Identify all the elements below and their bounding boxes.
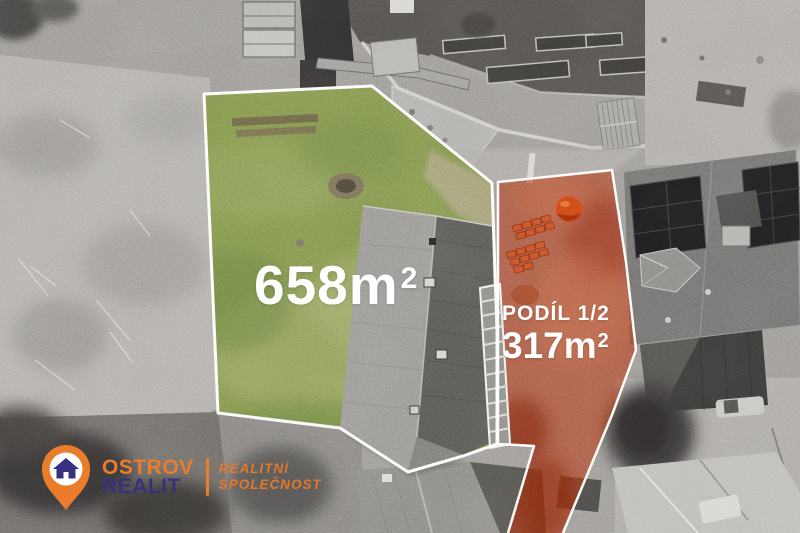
tagline-line1: REALITNÍ <box>219 461 322 477</box>
aerial-photo: 658m2 PODÍL 1/2 317m2 OSTROV REALIT REAL… <box>0 0 800 533</box>
tagline-line2: SPOLEČNOST <box>219 477 322 493</box>
brand-name: OSTROV REALIT <box>102 458 194 497</box>
map-pin-home-icon <box>38 442 94 512</box>
main-parcel-area-label: 658m2 <box>254 258 418 313</box>
brand-divider <box>206 458 209 496</box>
share-parcel-label-block: PODÍL 1/2 317m2 <box>502 303 610 364</box>
agency-logo: OSTROV REALIT REALITNÍ SPOLEČNOST <box>38 442 322 512</box>
brand-name-realit: REALIT <box>102 477 194 496</box>
share-parcel-title: PODÍL 1/2 <box>502 303 610 324</box>
brand-tagline: REALITNÍ SPOLEČNOST <box>219 461 322 494</box>
main-area-exponent: 2 <box>401 262 419 295</box>
share-area-exponent: 2 <box>598 330 609 352</box>
share-parcel-area-label: 317m2 <box>502 327 610 364</box>
